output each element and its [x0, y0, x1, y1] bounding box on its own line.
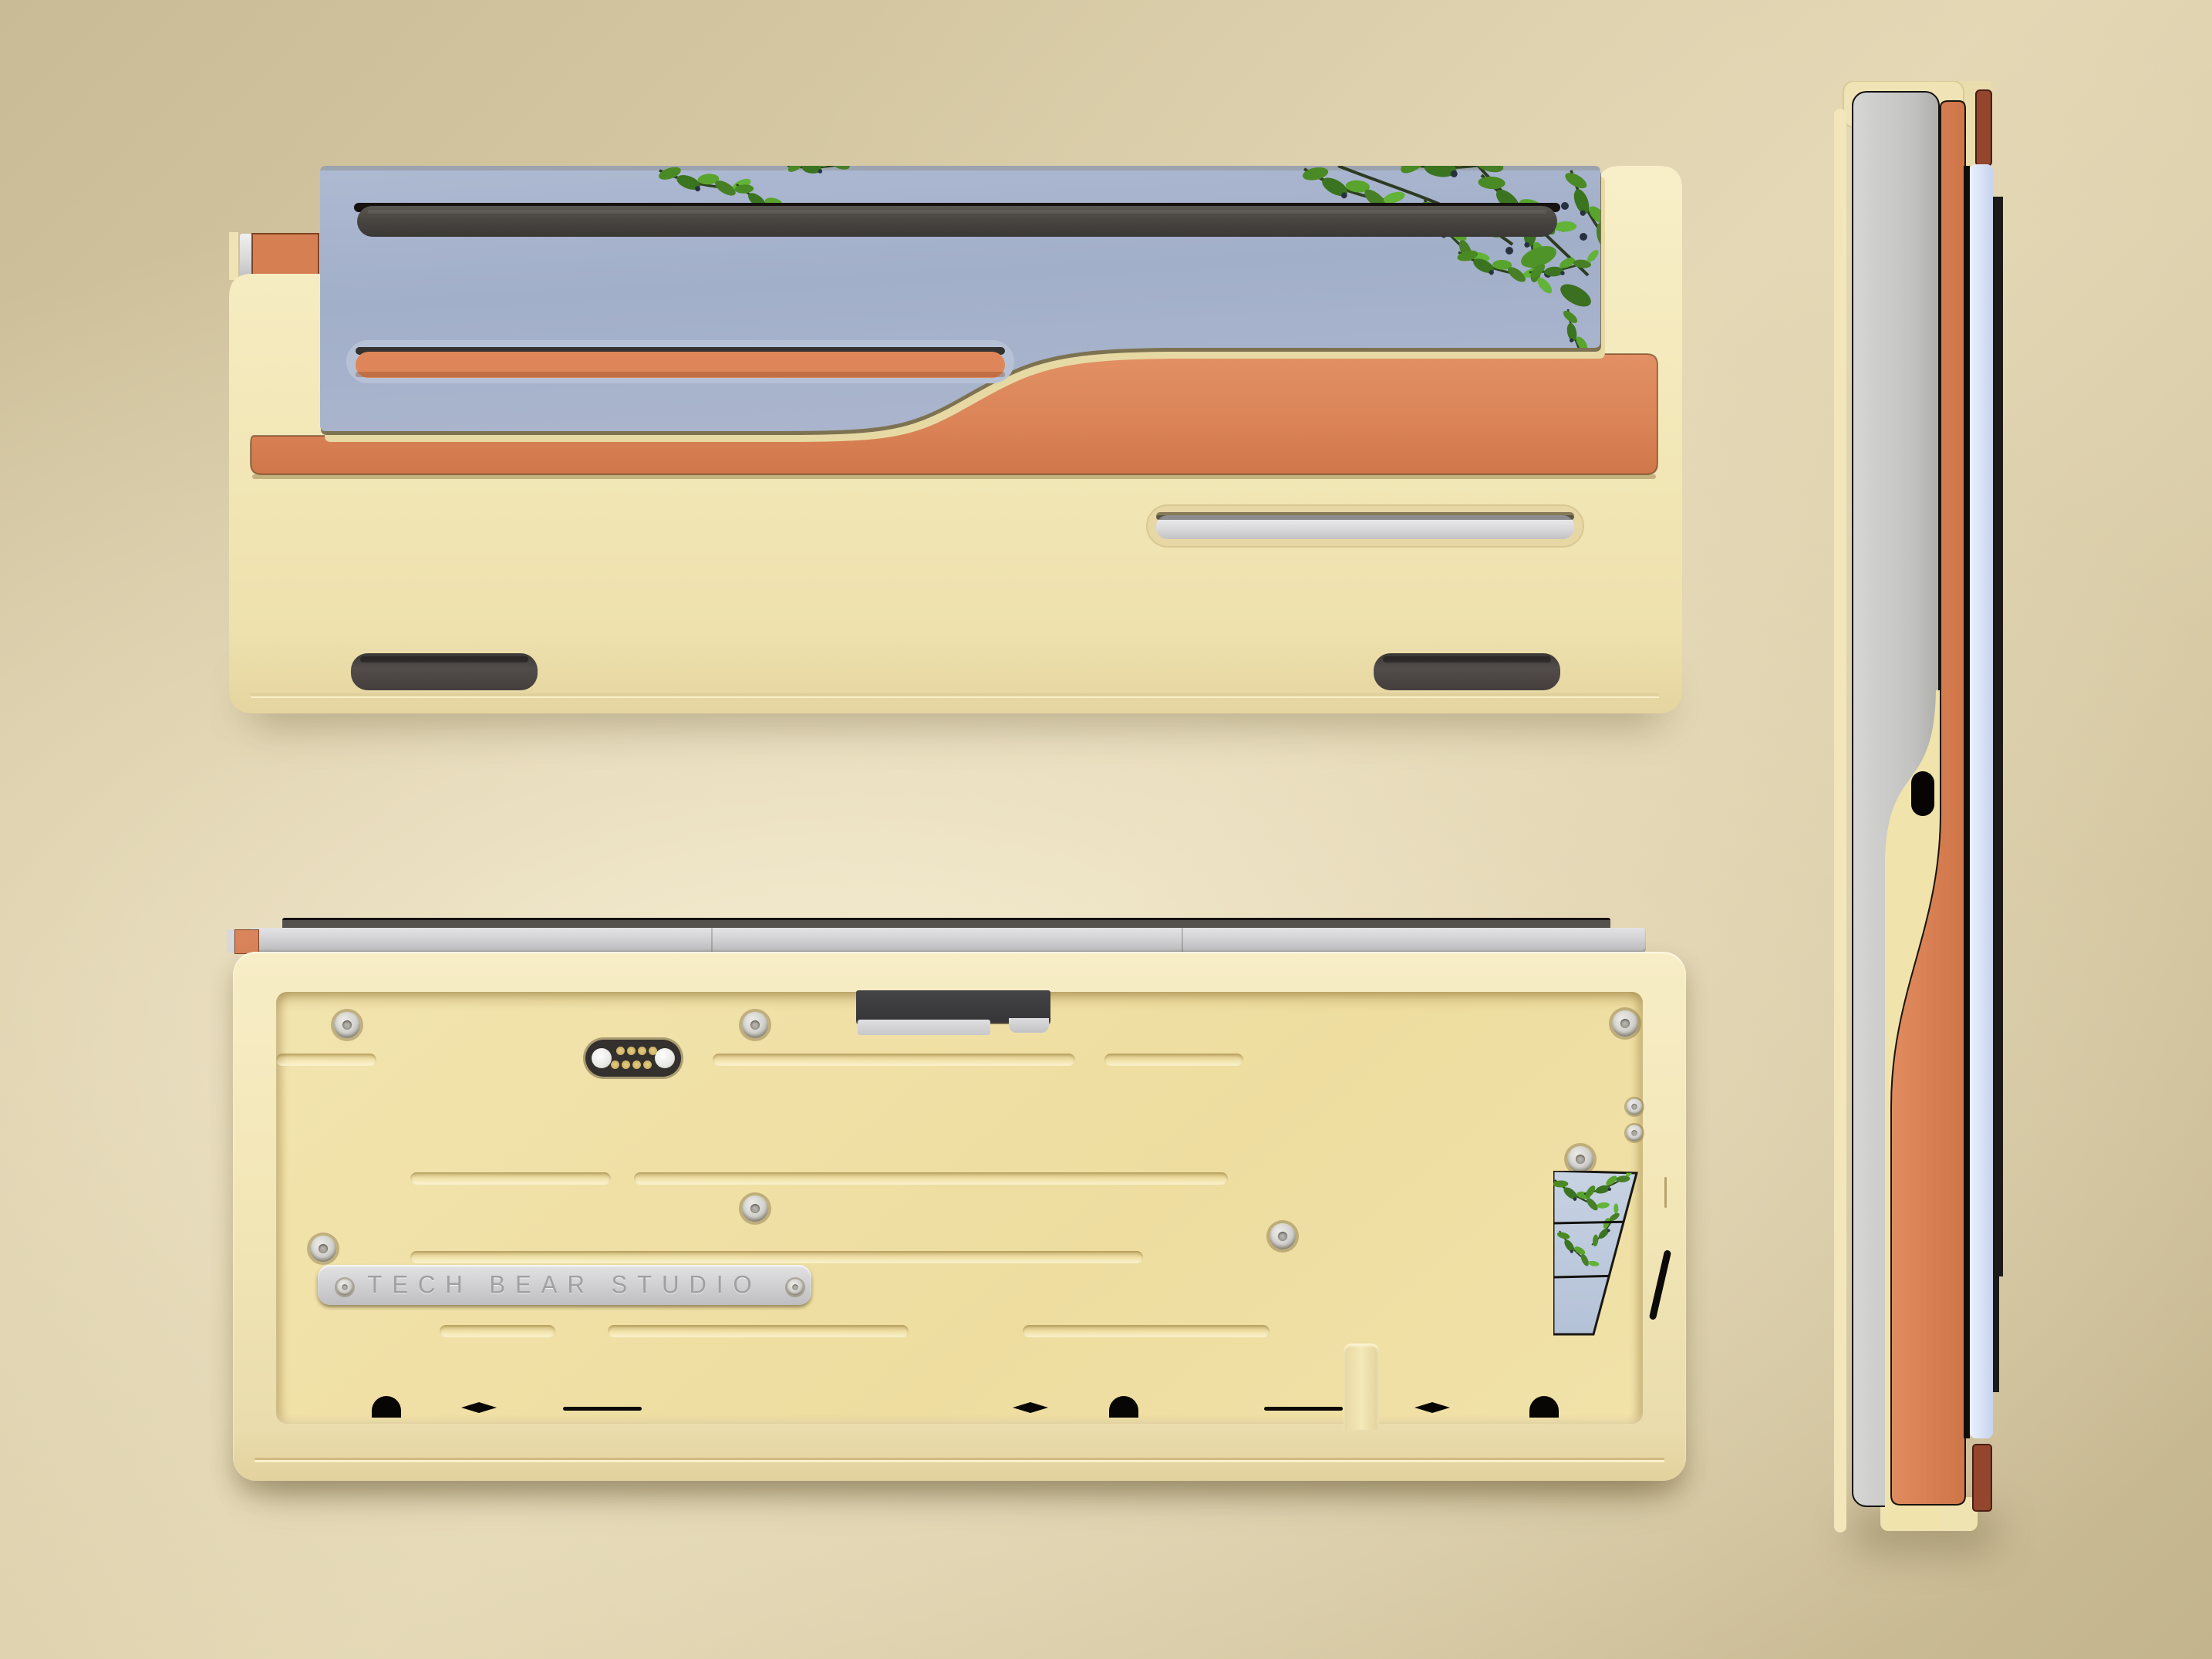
case-bottom-step-shadow: [251, 693, 1659, 696]
case-screw: [1612, 1010, 1638, 1037]
pogo-connector: [585, 1040, 681, 1077]
pogo-pin: [649, 1047, 657, 1055]
badge-bar: TECH BEAR STUDIO: [318, 1265, 811, 1305]
keyboard-back-view: [228, 158, 1684, 715]
floor-groove: [410, 1251, 1143, 1263]
plate-seam: [1182, 928, 1183, 953]
plate-seam: [711, 928, 713, 953]
mirror-corner-graphic: [1553, 1171, 1640, 1336]
case-bottom-step: [255, 1458, 1664, 1460]
usb-bracket-plate: [858, 1020, 990, 1035]
render-scene: TECH BEAR STUDIO: [0, 0, 2212, 1659]
floor-groove: [608, 1325, 909, 1337]
pogo-pin: [638, 1047, 646, 1055]
side-gap-line: [1964, 166, 1970, 1438]
side-plate-blue-edge: [1970, 164, 1993, 1438]
plate-edge-cap: [240, 234, 252, 277]
case-screw: [742, 1195, 768, 1222]
orange-band-shadow: [252, 474, 1656, 479]
case-left-sliver: [229, 232, 238, 280]
pogo-pin: [611, 1060, 619, 1069]
pogo-pin: [632, 1060, 641, 1069]
dark-slot-highlight: [368, 210, 1546, 214]
badge-screw: [787, 1279, 803, 1295]
wall-crease: [1664, 1177, 1667, 1208]
keyboard-side-view: [1834, 81, 2008, 1558]
pogo-pin: [643, 1060, 652, 1069]
rubber-foot-left-shadow: [360, 656, 528, 663]
keyboard-bottom-view: TECH BEAR STUDIO: [233, 918, 1686, 1481]
case-screw: [742, 1012, 768, 1038]
interior-divider-wall: [1344, 1344, 1379, 1430]
case-screw: [334, 1012, 360, 1038]
floor-groove: [410, 1172, 611, 1185]
keyboard-back-graphic: [228, 158, 1684, 715]
floor-groove: [440, 1325, 555, 1337]
floor-groove: [276, 1054, 376, 1066]
floor-groove: [713, 1054, 1075, 1066]
slot-hole: [563, 1407, 642, 1411]
keyboard-side-graphic: [1834, 81, 2008, 1558]
case-bottom-step-highlight: [251, 696, 1659, 698]
orange-slot-bar-edge: [356, 372, 1005, 377]
case-screw: [1567, 1146, 1593, 1172]
plate-edge-silver-strip: [248, 928, 1646, 953]
floor-groove: [1104, 1054, 1243, 1066]
case-screw: [1626, 1098, 1642, 1114]
case-screw: [1270, 1223, 1296, 1249]
side-shadow-strip-step: [1993, 1276, 1999, 1392]
floor-groove: [1023, 1325, 1270, 1337]
side-maroon-top-block: [1976, 90, 1991, 166]
rubber-foot-right-shadow: [1383, 656, 1551, 663]
usb-bracket-tab: [1009, 1018, 1049, 1033]
side-maroon-bottom-block: [1973, 1445, 1991, 1511]
slot-hole: [1264, 1407, 1343, 1411]
side-shadow-strip: [1993, 197, 2003, 1276]
side-case-front-strip: [1834, 109, 1846, 1533]
badge-screw: [336, 1279, 352, 1295]
case-screw: [310, 1236, 336, 1262]
silver-slot-bar-edge: [1156, 515, 1574, 520]
pogo-pin: [622, 1060, 630, 1069]
floor-groove: [634, 1172, 1228, 1185]
case-screw: [1626, 1125, 1642, 1141]
mirror-corner-face: [1553, 1171, 1637, 1334]
mirror-corner-cutout: [1553, 1171, 1640, 1336]
pogo-end-contact: [655, 1048, 675, 1068]
engraving-text: TECH BEAR STUDIO: [367, 1270, 761, 1300]
pogo-end-contact: [592, 1048, 612, 1068]
pogo-pin: [616, 1047, 625, 1055]
usb-c-port: [1911, 771, 1934, 816]
orange-edge-chip: [234, 929, 259, 954]
pogo-pin: [627, 1047, 636, 1055]
orange-edge-tab: [252, 234, 319, 277]
